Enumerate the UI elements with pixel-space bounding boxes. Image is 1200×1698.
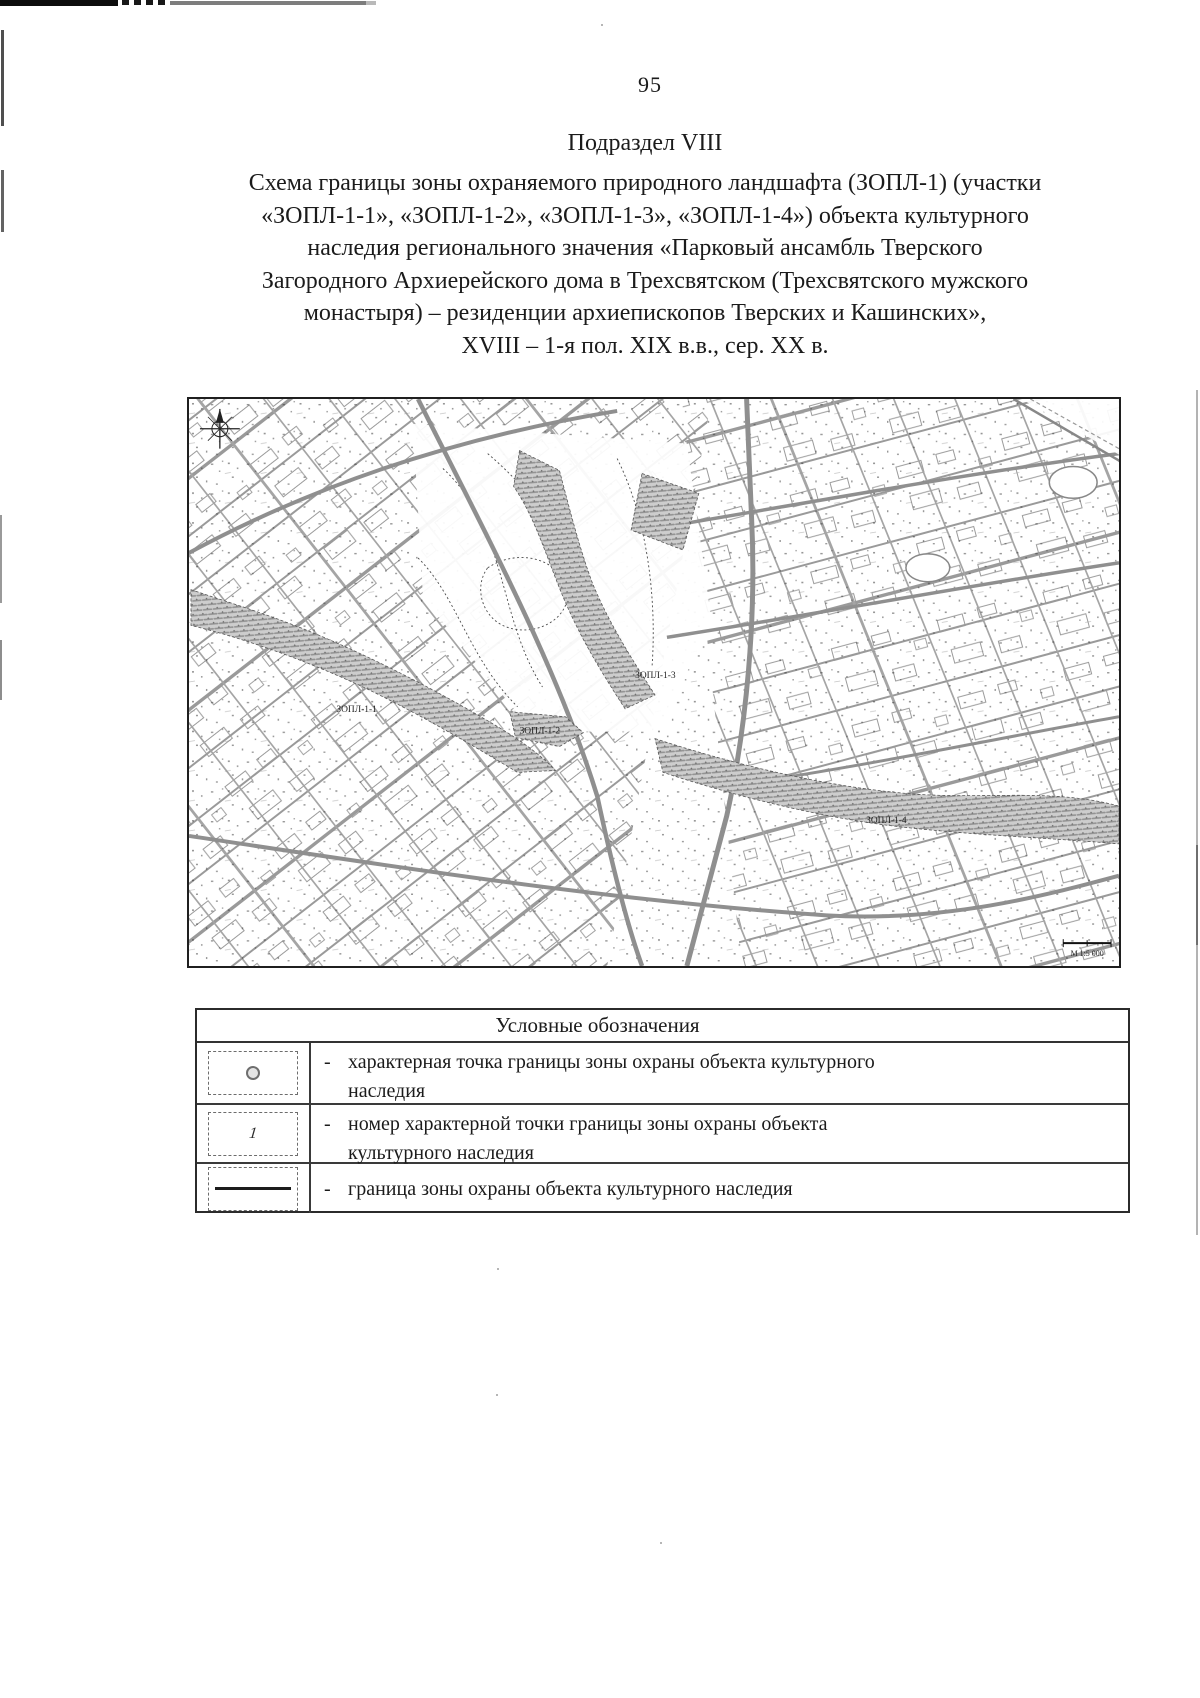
legend-dash: - (324, 1048, 348, 1099)
title-line: Схема границы зоны охраняемого природног… (140, 167, 1150, 200)
legend-row-boundary: - граница зоны охраны объекта культурног… (197, 1164, 1128, 1213)
number-symbol-box: 1 (208, 1112, 298, 1156)
title-line: монастыря) – резиденции архиепископов Тв… (140, 297, 1150, 330)
legend-text-line: граница зоны охраны объекта культурного … (348, 1175, 793, 1204)
scan-noise-dot (496, 1394, 498, 1396)
document-page: 95 Подраздел VIII Схема границы зоны охр… (0, 0, 1200, 1698)
legend-text-line: характерная точка границы зоны охраны об… (348, 1048, 875, 1077)
legend-symbol-cell (197, 1043, 311, 1103)
scan-artifact-top-fade (366, 1, 376, 5)
title-line: Загородного Архиерейского дома в Трехсвя… (140, 265, 1150, 298)
legend-text-cell: - граница зоны охраны объекта культурног… (311, 1164, 1128, 1213)
scan-artifact-left (1, 170, 4, 232)
map-pond (906, 554, 950, 582)
document-title: Схема границы зоны охраняемого природног… (140, 167, 1150, 362)
scan-noise-dot (497, 1268, 499, 1270)
zone-label: ЗОПЛ-1-1 (336, 705, 377, 715)
scan-noise-dot (660, 1542, 662, 1544)
legend-text-line: наследия (348, 1077, 875, 1106)
zone-label: ЗОПЛ-1-4 (866, 816, 907, 826)
legend-row-point: - характерная точка границы зоны охраны … (197, 1043, 1128, 1105)
legend-text-cell: - номер характерной точки границы зоны о… (311, 1105, 1128, 1162)
line-symbol-box (208, 1167, 298, 1211)
scan-artifact-top-gray (170, 1, 366, 5)
legend-symbol-cell: 1 (197, 1105, 311, 1162)
map-scale-text: М 1:5 000 (1071, 949, 1104, 958)
legend-row-number: 1 - номер характерной точки границы зоны… (197, 1105, 1128, 1164)
title-line: «ЗОПЛ-1-1», «ЗОПЛ-1-2», «ЗОПЛ-1-3», «ЗОП… (140, 200, 1150, 233)
legend-dash: - (324, 1175, 348, 1204)
legend-table: Условные обозначения - характерная точка… (195, 1008, 1130, 1213)
boundary-line-icon (215, 1187, 291, 1190)
zone-label: ЗОПЛ-1-2 (520, 727, 561, 737)
point-symbol-box (208, 1051, 298, 1095)
scan-artifact-right (1196, 845, 1198, 945)
legend-symbol-cell (197, 1164, 311, 1213)
legend-text-cell: - характерная точка границы зоны охраны … (311, 1043, 1128, 1103)
map-pond (1049, 467, 1097, 499)
scan-noise-dot (601, 24, 603, 26)
page-number: 95 (0, 72, 1200, 98)
legend-dash: - (324, 1110, 348, 1158)
legend-text: характерная точка границы зоны охраны об… (348, 1048, 875, 1099)
legend-text: номер характерной точки границы зоны охр… (348, 1110, 828, 1158)
point-number-icon: 1 (248, 1125, 258, 1143)
title-line: наследия регионального значения «Парковы… (140, 232, 1150, 265)
legend-title: Условные обозначения (197, 1010, 1128, 1043)
legend-text: граница зоны охраны объекта культурного … (348, 1175, 793, 1204)
scan-artifact-right (1196, 390, 1198, 1235)
scan-artifact-top-dashes (122, 0, 170, 5)
subsection-title: Подраздел VIII (145, 130, 1145, 157)
legend-text-line: номер характерной точки границы зоны охр… (348, 1110, 828, 1139)
scan-artifact-left (0, 515, 2, 603)
zone-label: ЗОПЛ-1-3 (635, 671, 676, 681)
scan-artifact-top (0, 0, 118, 6)
city-map: ЗОПЛ-1-1 ЗОПЛ-1-2 ЗОПЛ-1-3 ЗОПЛ-1-4 (189, 399, 1119, 966)
title-line: XVIII – 1-я пол. XIX в.в., сер. XX в. (140, 330, 1150, 363)
boundary-point-icon (246, 1066, 260, 1080)
map-image: ЗОПЛ-1-1 ЗОПЛ-1-2 ЗОПЛ-1-3 ЗОПЛ-1-4 (187, 397, 1121, 968)
scan-artifact-left (0, 640, 2, 700)
